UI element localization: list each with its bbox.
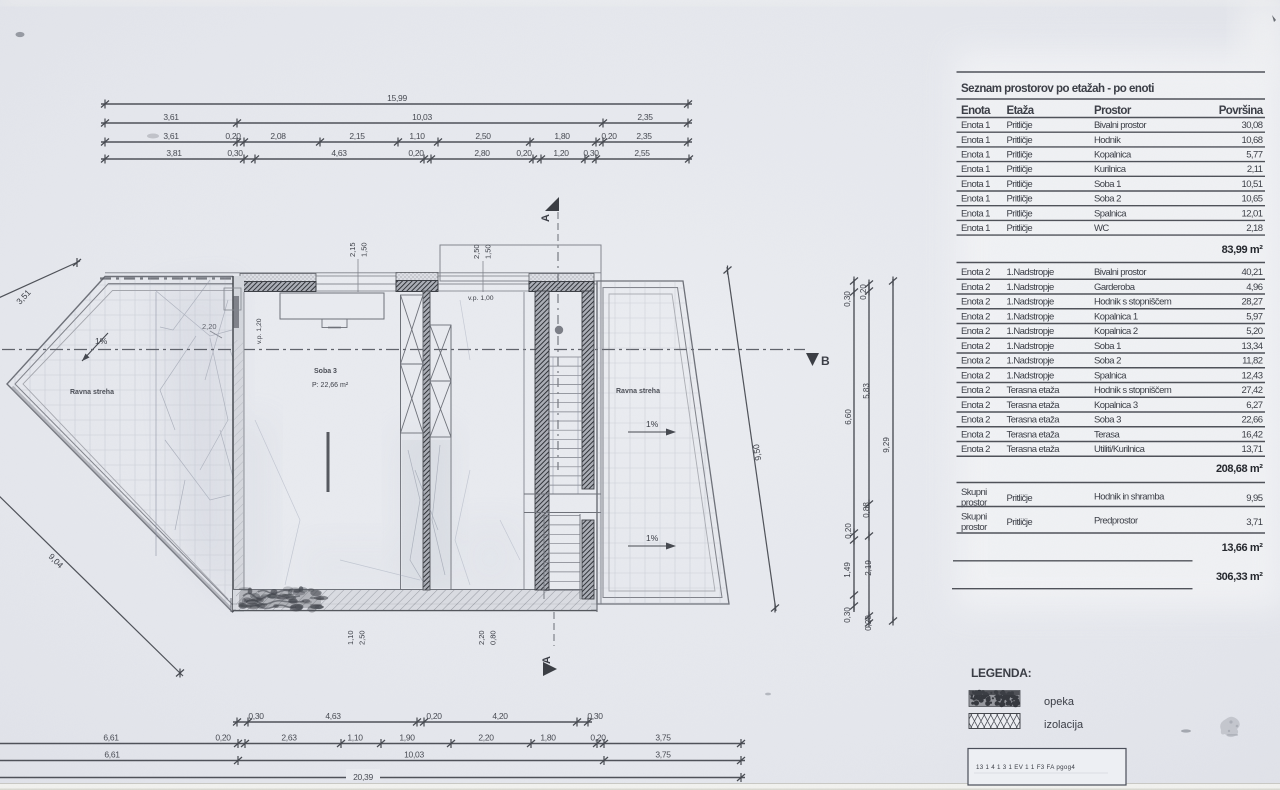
svg-text:10,03: 10,03: [412, 112, 432, 122]
svg-text:B: B: [821, 354, 830, 368]
svg-text:Enota 1: Enota 1: [961, 223, 990, 234]
svg-text:Seznam prostorov po etažah - p: Seznam prostorov po etažah - po enoti: [961, 83, 1154, 95]
svg-text:13,34: 13,34: [1241, 341, 1262, 352]
svg-text:2,18: 2,18: [1246, 223, 1263, 234]
svg-text:208,68 m²: 208,68 m²: [1216, 463, 1263, 475]
svg-text:6,60: 6,60: [844, 409, 853, 425]
svg-text:Terasna etaža: Terasna etaža: [1007, 400, 1061, 411]
svg-text:Enota 2: Enota 2: [961, 311, 990, 322]
svg-text:0,30: 0,30: [843, 291, 852, 307]
svg-text:Enota 2: Enota 2: [961, 341, 990, 352]
svg-text:13 1 4 1 3 1 EV 1 1 F3 FA pgog: 13 1 4 1 3 1 EV 1 1 F3 FA pgog4: [976, 764, 1075, 771]
svg-text:Enota 2: Enota 2: [961, 282, 990, 293]
svg-text:1.Nadstropje: 1.Nadstropje: [1007, 297, 1055, 308]
svg-text:Pritličje: Pritličje: [1007, 135, 1033, 146]
svg-text:Pritličje: Pritličje: [1007, 150, 1033, 161]
svg-text:WC: WC: [1094, 223, 1109, 234]
svg-text:1.Nadstropje: 1.Nadstropje: [1007, 311, 1055, 322]
svg-text:Terasna etaža: Terasna etaža: [1007, 444, 1061, 455]
svg-text:Bivalni prostor: Bivalni prostor: [1094, 120, 1146, 131]
svg-text:306,33 m²: 306,33 m²: [1216, 571, 1263, 583]
svg-text:1.Nadstropje: 1.Nadstropje: [1007, 341, 1055, 352]
svg-text:0,20: 0,20: [426, 711, 442, 721]
svg-text:1,50: 1,50: [484, 244, 493, 259]
svg-text:2,15: 2,15: [349, 131, 365, 141]
svg-text:Pritličje: Pritličje: [1007, 208, 1033, 219]
svg-text:3,81: 3,81: [166, 148, 182, 158]
svg-text:1%: 1%: [95, 336, 108, 346]
svg-text:Enota: Enota: [961, 105, 991, 117]
svg-text:izolacija: izolacija: [1044, 719, 1084, 731]
svg-text:Enota 1: Enota 1: [961, 120, 990, 131]
svg-text:2,08: 2,08: [270, 131, 286, 141]
svg-text:10,68: 10,68: [1241, 135, 1262, 146]
svg-text:Soba 2: Soba 2: [1094, 356, 1121, 367]
svg-text:Hodnik in shramba: Hodnik in shramba: [1094, 492, 1165, 503]
svg-text:Enota 1: Enota 1: [961, 164, 990, 175]
svg-text:16,42: 16,42: [1241, 429, 1262, 440]
svg-text:Soba 1: Soba 1: [1094, 179, 1121, 190]
svg-text:Spalnica: Spalnica: [1094, 370, 1127, 381]
svg-text:0,20: 0,20: [408, 148, 424, 158]
svg-text:2,50: 2,50: [472, 244, 481, 259]
svg-text:1,90: 1,90: [399, 733, 415, 743]
svg-text:Bivalni prostor: Bivalni prostor: [1094, 267, 1146, 278]
svg-text:6,61: 6,61: [104, 750, 120, 760]
svg-text:4,96: 4,96: [1246, 282, 1263, 293]
svg-text:4,63: 4,63: [331, 148, 347, 158]
svg-text:Kopalnica 3: Kopalnica 3: [1094, 400, 1138, 411]
svg-text:A: A: [540, 214, 552, 222]
svg-text:1,10: 1,10: [347, 733, 363, 743]
svg-text:0,30: 0,30: [583, 148, 599, 158]
svg-text:Enota 1: Enota 1: [961, 135, 990, 146]
svg-text:P: 22,66 m²: P: 22,66 m²: [312, 382, 349, 389]
svg-text:1,50: 1,50: [360, 242, 369, 257]
svg-text:1.Nadstropje: 1.Nadstropje: [1007, 282, 1055, 293]
svg-text:Soba 3: Soba 3: [1094, 415, 1121, 426]
svg-text:Pritličje: Pritličje: [1007, 517, 1033, 528]
svg-text:1%: 1%: [646, 533, 659, 543]
svg-text:2,11: 2,11: [1247, 164, 1263, 175]
svg-text:Pritličje: Pritličje: [1007, 223, 1033, 234]
svg-text:13,66 m²: 13,66 m²: [1222, 542, 1264, 554]
svg-text:0,20: 0,20: [844, 523, 853, 539]
svg-text:Hodnik s stopniščem: Hodnik s stopniščem: [1094, 297, 1172, 308]
svg-text:Enota 2: Enota 2: [961, 356, 990, 367]
svg-text:1,80: 1,80: [540, 733, 556, 743]
svg-text:10,65: 10,65: [1241, 194, 1262, 205]
svg-text:2,20: 2,20: [478, 733, 494, 743]
svg-text:Pritličje: Pritličje: [1007, 120, 1033, 131]
svg-text:30,08: 30,08: [1241, 120, 1262, 131]
svg-text:22,66: 22,66: [1241, 415, 1262, 426]
svg-text:Soba 1: Soba 1: [1094, 341, 1121, 352]
svg-text:Kopalnica 2: Kopalnica 2: [1094, 326, 1138, 337]
svg-text:Soba 3: Soba 3: [314, 368, 337, 375]
svg-text:1%: 1%: [646, 419, 659, 429]
svg-text:Enota 1: Enota 1: [961, 179, 990, 190]
svg-text:Enota 1: Enota 1: [961, 150, 990, 161]
svg-text:Enota 2: Enota 2: [961, 385, 990, 396]
svg-text:0,30: 0,30: [587, 711, 603, 721]
svg-text:5,83: 5,83: [862, 383, 871, 399]
svg-text:Soba 2: Soba 2: [1094, 194, 1121, 205]
svg-text:1,10: 1,10: [409, 131, 425, 141]
svg-text:13,71: 13,71: [1241, 444, 1262, 455]
svg-text:Enota 1: Enota 1: [961, 194, 990, 205]
svg-text:Kurilnica: Kurilnica: [1094, 164, 1127, 175]
svg-text:5,97: 5,97: [1246, 311, 1263, 322]
svg-text:2,35: 2,35: [636, 131, 652, 141]
svg-text:4,20: 4,20: [492, 711, 508, 721]
svg-text:2,55: 2,55: [634, 148, 650, 158]
svg-text:Ravna streha: Ravna streha: [70, 389, 114, 396]
svg-text:0,20: 0,20: [590, 733, 606, 743]
svg-text:0,20: 0,20: [601, 131, 617, 141]
svg-text:2,50: 2,50: [475, 131, 491, 141]
svg-text:Enota 2: Enota 2: [961, 415, 990, 426]
svg-text:40,21: 40,21: [1241, 267, 1262, 278]
svg-text:3,75: 3,75: [655, 733, 671, 743]
svg-text:0,20: 0,20: [864, 615, 873, 631]
svg-text:A: A: [541, 656, 553, 664]
svg-text:prostor: prostor: [961, 522, 987, 533]
svg-text:12,43: 12,43: [1241, 370, 1262, 381]
svg-text:0,20: 0,20: [215, 733, 231, 743]
svg-text:1,10: 1,10: [346, 630, 355, 645]
svg-text:12,01: 12,01: [1241, 208, 1262, 219]
svg-text:0,20: 0,20: [516, 148, 532, 158]
svg-text:9,29: 9,29: [882, 437, 891, 453]
svg-text:Enota 2: Enota 2: [961, 297, 990, 308]
svg-text:1,80: 1,80: [554, 131, 570, 141]
svg-text:Terasna etaža: Terasna etaža: [1007, 429, 1061, 440]
svg-text:Ravna streha: Ravna streha: [616, 388, 660, 395]
svg-text:3,61: 3,61: [163, 112, 179, 122]
svg-text:Utiliti/Kurilnica: Utiliti/Kurilnica: [1094, 444, 1146, 455]
svg-text:6,61: 6,61: [103, 733, 119, 743]
svg-text:0,88: 0,88: [862, 502, 871, 518]
svg-text:4,63: 4,63: [325, 711, 341, 721]
svg-text:10,03: 10,03: [404, 750, 424, 760]
svg-text:Enota 2: Enota 2: [961, 444, 990, 455]
svg-text:0,20: 0,20: [859, 284, 868, 300]
svg-text:v.p. 1,20: v.p. 1,20: [256, 318, 263, 344]
svg-text:2,80: 2,80: [474, 148, 490, 158]
svg-text:0,30: 0,30: [227, 148, 243, 158]
svg-text:Enota 2: Enota 2: [961, 267, 990, 278]
svg-text:0,20: 0,20: [225, 131, 241, 141]
svg-text:3,61: 3,61: [163, 131, 179, 141]
svg-text:v.p. 1,00: v.p. 1,00: [468, 295, 494, 302]
svg-text:Kopalnica 1: Kopalnica 1: [1094, 311, 1138, 322]
svg-text:Površina: Površina: [1219, 105, 1264, 117]
svg-text:10,51: 10,51: [1241, 179, 1262, 190]
svg-text:83,99 m²: 83,99 m²: [1222, 244, 1264, 256]
svg-text:28,27: 28,27: [1241, 297, 1262, 308]
svg-text:Enota 2: Enota 2: [961, 326, 990, 337]
svg-text:5,20: 5,20: [1246, 326, 1263, 337]
svg-text:9,95: 9,95: [1246, 493, 1263, 504]
svg-text:3,71: 3,71: [1246, 517, 1263, 528]
svg-text:Enota 2: Enota 2: [961, 370, 990, 381]
svg-text:LEGENDA:: LEGENDA:: [971, 666, 1031, 680]
svg-text:1.Nadstropje: 1.Nadstropje: [1007, 267, 1055, 278]
svg-text:Pritličje: Pritličje: [1007, 194, 1033, 205]
svg-text:Skupni: Skupni: [961, 512, 987, 523]
svg-text:Hodnik: Hodnik: [1094, 135, 1121, 146]
svg-text:20,39: 20,39: [353, 772, 373, 782]
svg-text:Pritličje: Pritličje: [1007, 493, 1033, 504]
svg-text:2,50: 2,50: [358, 630, 367, 645]
svg-text:Pritličje: Pritličje: [1007, 179, 1033, 190]
svg-text:Predprostor: Predprostor: [1094, 516, 1138, 527]
svg-text:Enota 2: Enota 2: [961, 400, 990, 411]
svg-text:11,82: 11,82: [1242, 356, 1263, 367]
svg-text:Hodnik s stopniščem: Hodnik s stopniščem: [1094, 385, 1172, 396]
svg-text:Skupni: Skupni: [961, 487, 987, 498]
svg-text:15,99: 15,99: [387, 93, 407, 103]
svg-text:Terasna etaža: Terasna etaža: [1007, 415, 1061, 426]
svg-text:opeka: opeka: [1044, 696, 1075, 708]
svg-text:1,20: 1,20: [553, 148, 569, 158]
svg-text:0,80: 0,80: [489, 630, 498, 645]
svg-text:Kopalnica: Kopalnica: [1094, 150, 1132, 161]
svg-text:1,49: 1,49: [843, 562, 852, 578]
svg-text:Terasna etaža: Terasna etaža: [1007, 385, 1061, 396]
svg-text:Enota 2: Enota 2: [961, 429, 990, 440]
svg-text:2,20: 2,20: [477, 630, 486, 645]
svg-text:5,77: 5,77: [1246, 150, 1263, 161]
svg-text:3,75: 3,75: [655, 750, 671, 760]
svg-text:Terasa: Terasa: [1094, 429, 1120, 440]
svg-text:1.Nadstropje: 1.Nadstropje: [1007, 356, 1055, 367]
svg-text:Garderoba: Garderoba: [1094, 282, 1136, 293]
svg-text:Pritličje: Pritličje: [1007, 164, 1033, 175]
svg-text:2,35: 2,35: [637, 112, 653, 122]
svg-text:Prostor: Prostor: [1094, 105, 1132, 117]
svg-text:Spalnica: Spalnica: [1094, 208, 1127, 219]
svg-text:0,30: 0,30: [843, 607, 852, 623]
svg-text:Enota 1: Enota 1: [961, 208, 990, 219]
svg-text:1.Nadstropje: 1.Nadstropje: [1007, 326, 1055, 337]
svg-text:2,19: 2,19: [864, 560, 873, 576]
svg-text:2,15: 2,15: [348, 242, 357, 257]
svg-text:6,27: 6,27: [1246, 400, 1263, 411]
svg-text:27,42: 27,42: [1241, 385, 1262, 396]
svg-text:2,63: 2,63: [281, 733, 297, 743]
svg-text:1.Nadstropje: 1.Nadstropje: [1007, 370, 1055, 381]
svg-text:Etaža: Etaža: [1007, 105, 1035, 117]
svg-text:0,30: 0,30: [248, 711, 264, 721]
